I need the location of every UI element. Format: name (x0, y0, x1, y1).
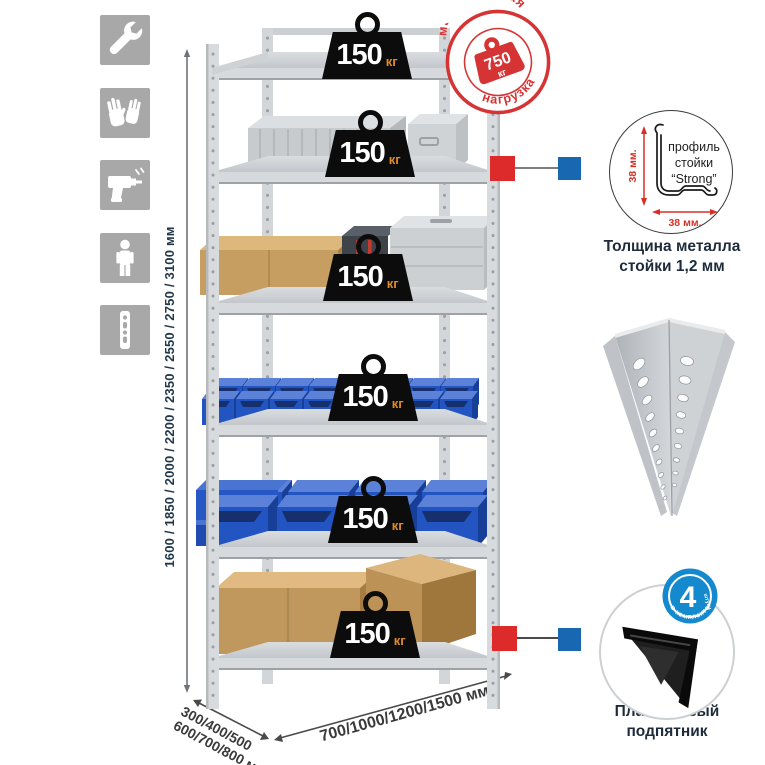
load-value: 150 (342, 503, 387, 536)
profile-dim-vertical: 38 мм. (627, 126, 647, 206)
feature-tile-post (100, 305, 150, 355)
load-unit: кг (392, 518, 404, 533)
load-value: 150 (339, 137, 384, 170)
load-unit: кг (387, 276, 399, 291)
svg-text:38 мм.: 38 мм. (668, 217, 701, 229)
load-value: 150 (337, 261, 382, 294)
infographic-canvas: 1600 / 1850 / 2000 / 2200 / 2350 / 2550 … (0, 0, 765, 765)
plastic-foot-image (622, 627, 698, 708)
connector-line-top (514, 167, 560, 169)
feature-tile-drill (100, 160, 150, 210)
angle-post-image (595, 306, 745, 534)
svg-text:38 мм.: 38 мм. (627, 149, 639, 182)
profile-caption-line2: стойки 1,2 мм (597, 257, 747, 277)
load-badge-2: 150кг (325, 110, 415, 177)
load-unit: кг (386, 54, 398, 69)
load-unit: кг (394, 633, 406, 648)
load-badge-1: 150кг (322, 12, 412, 79)
load-value: 150 (336, 39, 381, 72)
rack-post-icon (100, 305, 150, 355)
marker-blue-bottom (558, 628, 581, 651)
count-value: 4 (680, 581, 697, 614)
svg-text:профиль: профиль (668, 140, 720, 154)
svg-text:стойки: стойки (675, 156, 713, 170)
drill-icon (100, 160, 150, 210)
load-value: 150 (344, 618, 389, 651)
profile-label: профиль стойки “Strong” (668, 140, 720, 186)
load-badge-5: 150кг (328, 476, 418, 543)
connector-line-bottom (516, 637, 561, 639)
marker-red-bottom (492, 626, 517, 651)
profile-caption: Толщина металла стойки 1,2 мм (597, 237, 747, 277)
load-unit: кг (392, 396, 404, 411)
load-badge-3: 150кг (323, 234, 413, 301)
load-badge-4: 150кг (328, 354, 418, 421)
load-unit: кг (389, 152, 401, 167)
foot-caption-line2: подпятник (592, 722, 742, 742)
load-badge-6: 150кг (330, 591, 420, 658)
feature-tile-person (100, 233, 150, 283)
marker-blue-top (558, 157, 581, 180)
profile-caption-line1: Толщина металла (597, 237, 747, 257)
gloves-icon (100, 88, 150, 138)
svg-text:“Strong”: “Strong” (671, 172, 716, 186)
load-value: 150 (342, 381, 387, 414)
wrench-icon (100, 15, 150, 65)
feature-tile-assembly (100, 15, 150, 65)
post-profile-detail: 38 мм. 38 мм. профиль стойки “Strong” (609, 110, 733, 234)
person-icon (100, 233, 150, 283)
height-dimension-label: 1600 / 1850 / 2000 / 2200 / 2350 / 2550 … (162, 197, 182, 597)
profile-dim-horizontal: 38 мм. (652, 209, 718, 229)
marker-red-top (490, 156, 515, 181)
feature-tile-gloves (100, 88, 150, 138)
included-count-badge: 4 штуки в комплекте (661, 567, 719, 625)
